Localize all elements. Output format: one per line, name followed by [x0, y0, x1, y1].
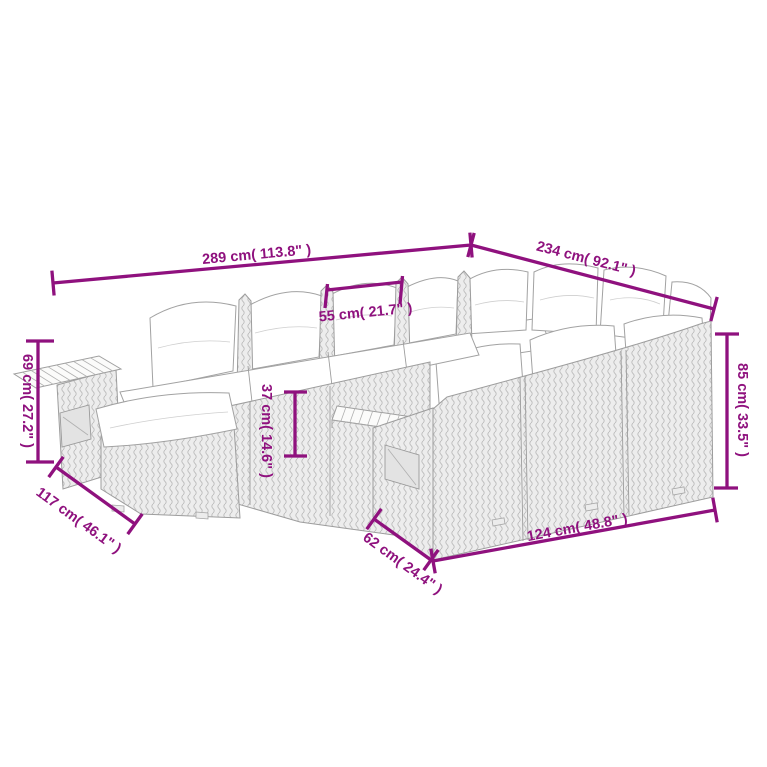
dim-armrest-height: 69 cm( 27.2" ) [19, 341, 54, 462]
ottoman [96, 393, 240, 519]
dim-seat-height-label: 37 cm( 14.6" ) [258, 384, 274, 478]
dim-armrest-height-label: 69 cm( 27.2" ) [19, 354, 35, 448]
right-run-armrest [373, 408, 433, 560]
dim-back-height: 85 cm( 33.5" ) [714, 334, 750, 488]
diagram-canvas: 289 cm( 113.8" ) 234 cm( 92.1" ) 55 cm( … [0, 0, 767, 767]
dim-back-height-label: 85 cm( 33.5" ) [734, 363, 750, 457]
product-dimension-diagram: 289 cm( 113.8" ) 234 cm( 92.1" ) 55 cm( … [0, 0, 767, 767]
